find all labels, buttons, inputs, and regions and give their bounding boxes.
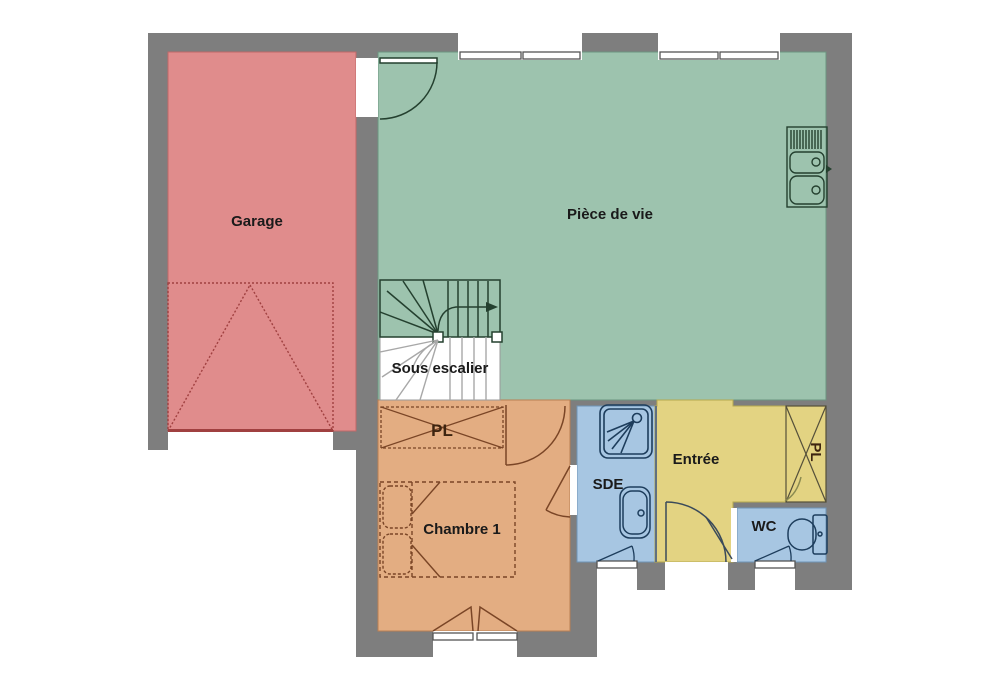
wall-step-jog	[570, 562, 597, 657]
window-icon	[720, 52, 778, 59]
wall-wc-top	[733, 502, 826, 508]
label-hall-closet: PL	[431, 421, 453, 440]
window-icon	[523, 52, 580, 59]
label-entry: Entrée	[673, 451, 720, 468]
window-icon	[755, 561, 795, 568]
wall-right	[826, 33, 852, 590]
label-entry-closet: PL	[807, 442, 824, 461]
label-bedroom: Chambre 1	[423, 521, 501, 538]
window-icon	[460, 52, 521, 59]
garage-door-opening	[168, 431, 333, 450]
front-door-opening	[665, 562, 728, 590]
window-icon	[477, 633, 517, 640]
label-wc: WC	[752, 518, 777, 535]
room-garage	[168, 52, 356, 431]
floor-plan: Garage Pièce de vie Sous escalier PL Cha…	[0, 0, 1000, 693]
label-under-stairs: Sous escalier	[392, 360, 489, 377]
floor-plan-canvas: Garage Pièce de vie Sous escalier PL Cha…	[0, 0, 1000, 693]
window-icon	[660, 52, 718, 59]
window-icon	[433, 633, 473, 640]
label-sde: SDE	[593, 476, 624, 493]
window-icon	[597, 561, 637, 568]
label-garage: Garage	[231, 213, 283, 230]
door-opening-bedroom-sde	[570, 465, 577, 515]
wall-middle-vertical	[356, 52, 378, 657]
wall-left	[148, 33, 168, 450]
door-opening-wc	[731, 508, 737, 562]
door-opening-garage-living	[356, 58, 378, 117]
label-living: Pièce de vie	[567, 206, 653, 223]
wall-above-entry-closet	[733, 400, 826, 406]
room-bedroom	[378, 400, 570, 631]
